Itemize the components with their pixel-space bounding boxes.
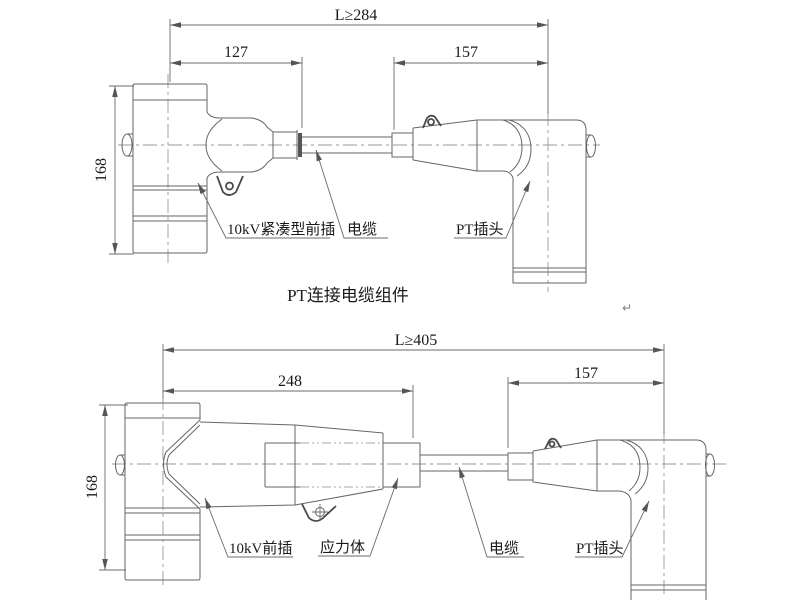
bottom-eyelet-tab [302,504,336,521]
top-label-front-plug: 10kV紧凑型前插 [227,221,335,238]
bottom-stress-body [383,443,420,487]
bottom-label-front-plug: 10kV前插 [229,540,292,557]
top-dim-front-plug: 127 [224,44,248,61]
bottom-labels: 10kV前插 应力体 电缆 PT插头 [205,467,649,557]
top-dimensions: L≥284 127 157 168 [93,7,548,254]
bottom-dim-front-plug: 248 [278,373,302,390]
top-label-cable: 电缆 [347,221,377,238]
top-dim-height: 168 [93,158,110,182]
return-mark: ↵ [622,301,632,315]
top-drawing: L≥284 127 157 168 10kV紧凑型前插 电缆 PT插头 PT连接… [93,7,632,315]
top-labels: 10kV紧凑型前插 电缆 PT插头 [198,150,530,238]
bottom-pt-plug [508,439,715,600]
bottom-label-pt-plug: PT插头 [576,540,624,557]
bottom-dim-pt-plug: 157 [574,365,598,382]
top-drawing-title: PT连接电缆组件 [287,286,409,305]
bottom-drawing: L≥405 248 157 168 10kV前插 应力体 电缆 PT插头 [84,332,730,600]
bottom-centerlines [112,396,730,598]
bottom-dim-overall: L≥405 [395,332,438,349]
drawing-page: L≥284 127 157 168 10kV紧凑型前插 电缆 PT插头 PT连接… [0,0,800,600]
top-eyelet-tab [217,176,243,195]
bottom-cable [420,455,508,471]
bottom-pt-knob [706,454,715,476]
bottom-dim-height: 168 [84,475,101,499]
top-dim-overall: L≥284 [335,7,378,24]
bottom-elbow-knob [116,455,125,475]
bottom-dimensions: L≥405 248 157 168 [84,332,664,570]
top-dim-pt-plug: 157 [454,44,478,61]
bottom-label-cable: 电缆 [489,540,519,557]
top-centerlines [118,74,600,292]
bottom-label-stress-cone: 应力体 [320,538,365,556]
top-pt-plug [392,116,596,283]
technical-drawing-canvas: L≥284 127 157 168 10kV紧凑型前插 电缆 PT插头 PT连接… [0,0,800,600]
top-label-pt-plug: PT插头 [456,221,504,238]
top-pt-knob [587,135,596,157]
